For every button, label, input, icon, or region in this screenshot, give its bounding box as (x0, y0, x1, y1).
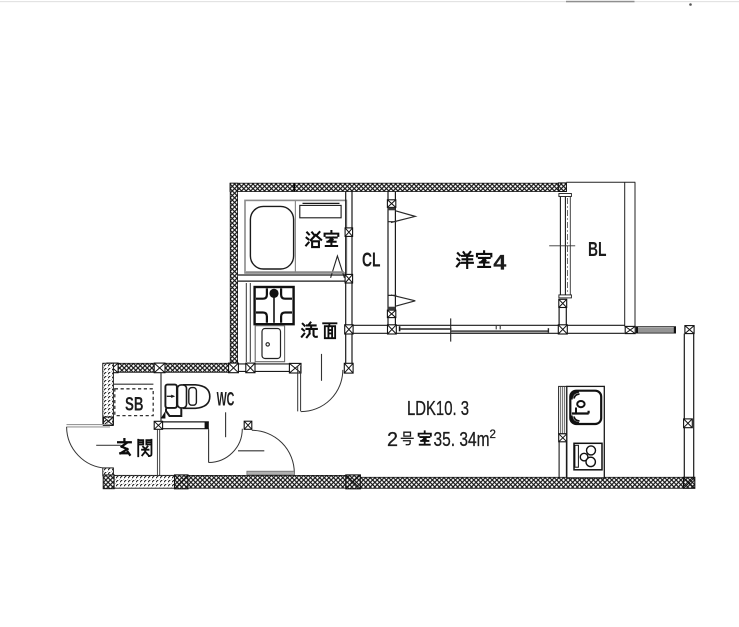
svg-text:BL: BL (588, 239, 607, 261)
svg-text:35. 34m: 35. 34m (434, 429, 490, 451)
svg-text:WC: WC (217, 389, 235, 410)
svg-text:4: 4 (493, 251, 506, 275)
svg-text:2: 2 (387, 429, 398, 451)
svg-text:SB: SB (125, 395, 144, 416)
svg-text:CL: CL (362, 250, 381, 272)
svg-text:LDK10. 3: LDK10. 3 (407, 397, 469, 420)
svg-text:2: 2 (490, 429, 496, 441)
